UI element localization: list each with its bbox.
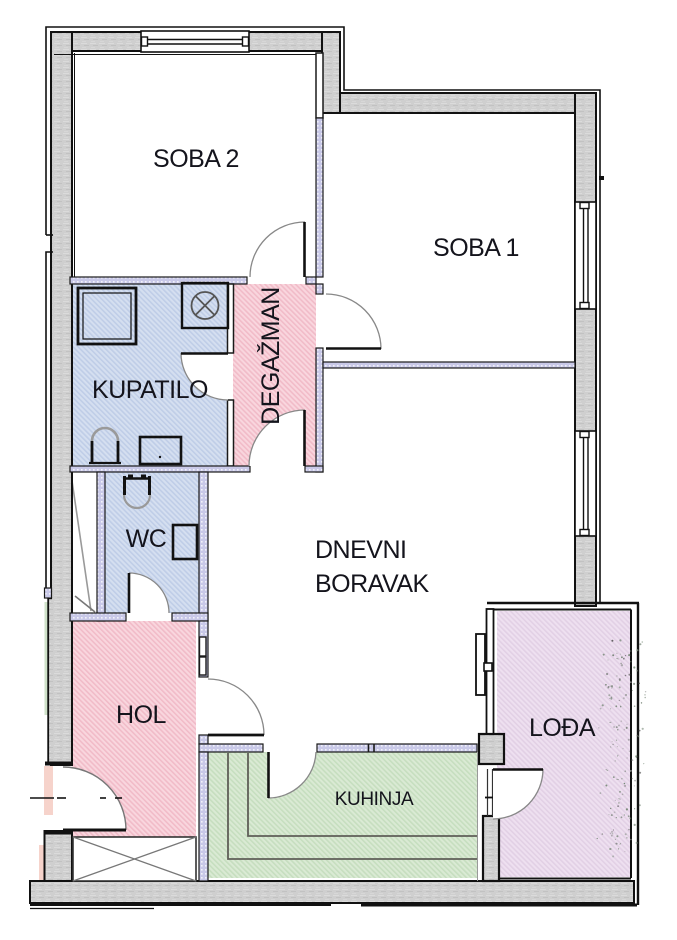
- svg-text:HOL: HOL: [116, 701, 167, 729]
- svg-text:SOBA 2: SOBA 2: [153, 145, 239, 173]
- svg-text:DNEVNI: DNEVNI: [315, 536, 406, 564]
- svg-text:SOBA 1: SOBA 1: [433, 234, 519, 262]
- svg-text:KUHINJA: KUHINJA: [335, 789, 414, 810]
- svg-text:DEGAŽMAN: DEGAŽMAN: [256, 287, 285, 425]
- svg-text:BORAVAK: BORAVAK: [315, 570, 429, 598]
- svg-text:KUPATILO: KUPATILO: [92, 376, 208, 404]
- svg-text:LOĐA: LOĐA: [529, 714, 596, 742]
- svg-text:WC: WC: [126, 525, 167, 553]
